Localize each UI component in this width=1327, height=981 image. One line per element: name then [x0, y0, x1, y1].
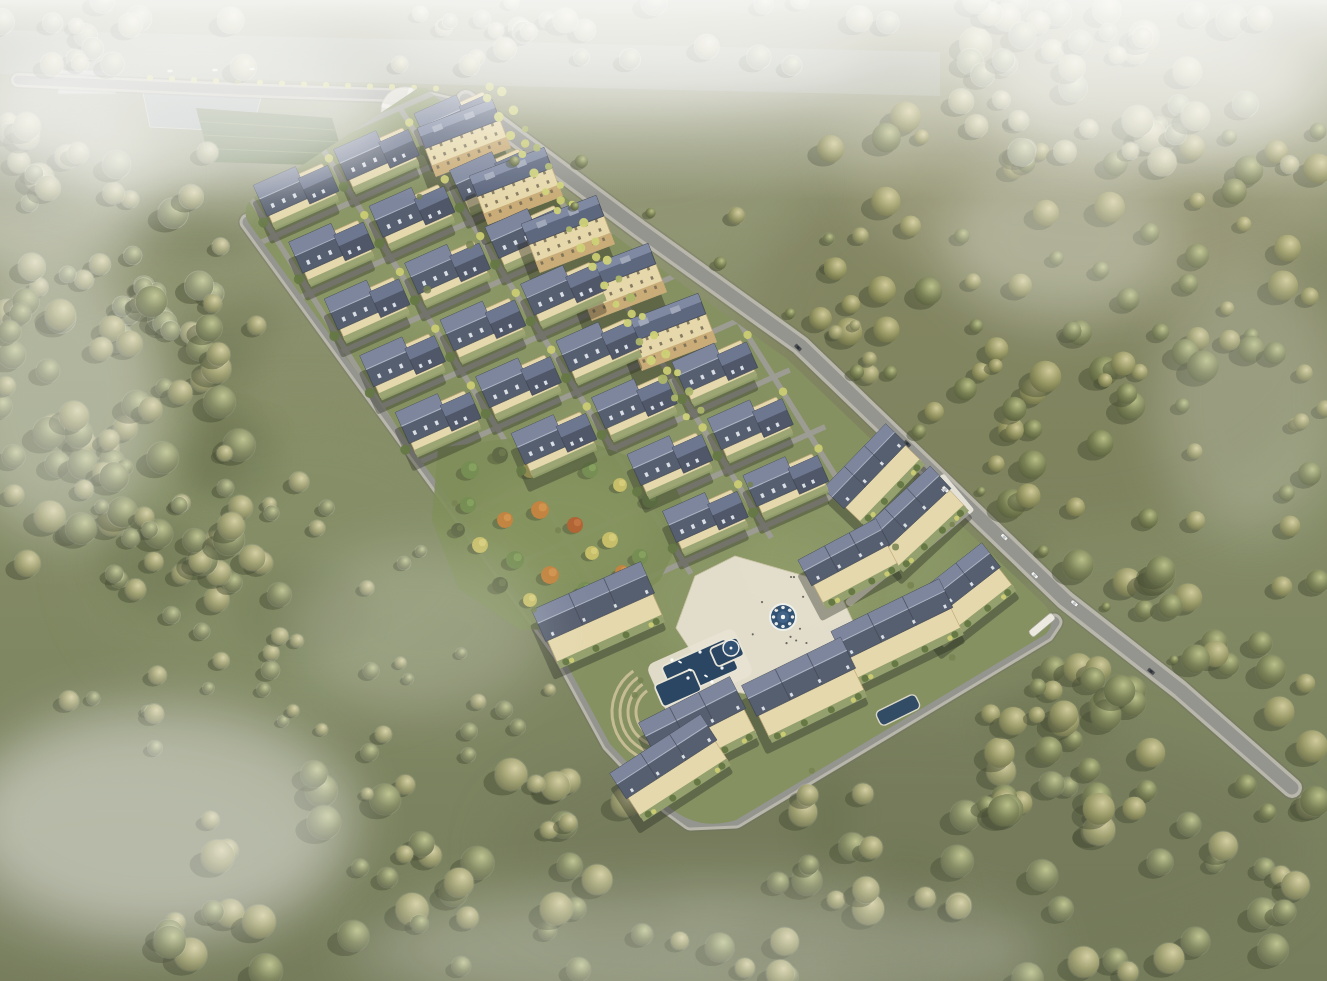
scene-svg	[0, 0, 1327, 981]
atmosphere	[0, 0, 1327, 981]
global-veil	[0, 0, 1327, 981]
aerial-rendering	[0, 0, 1327, 981]
